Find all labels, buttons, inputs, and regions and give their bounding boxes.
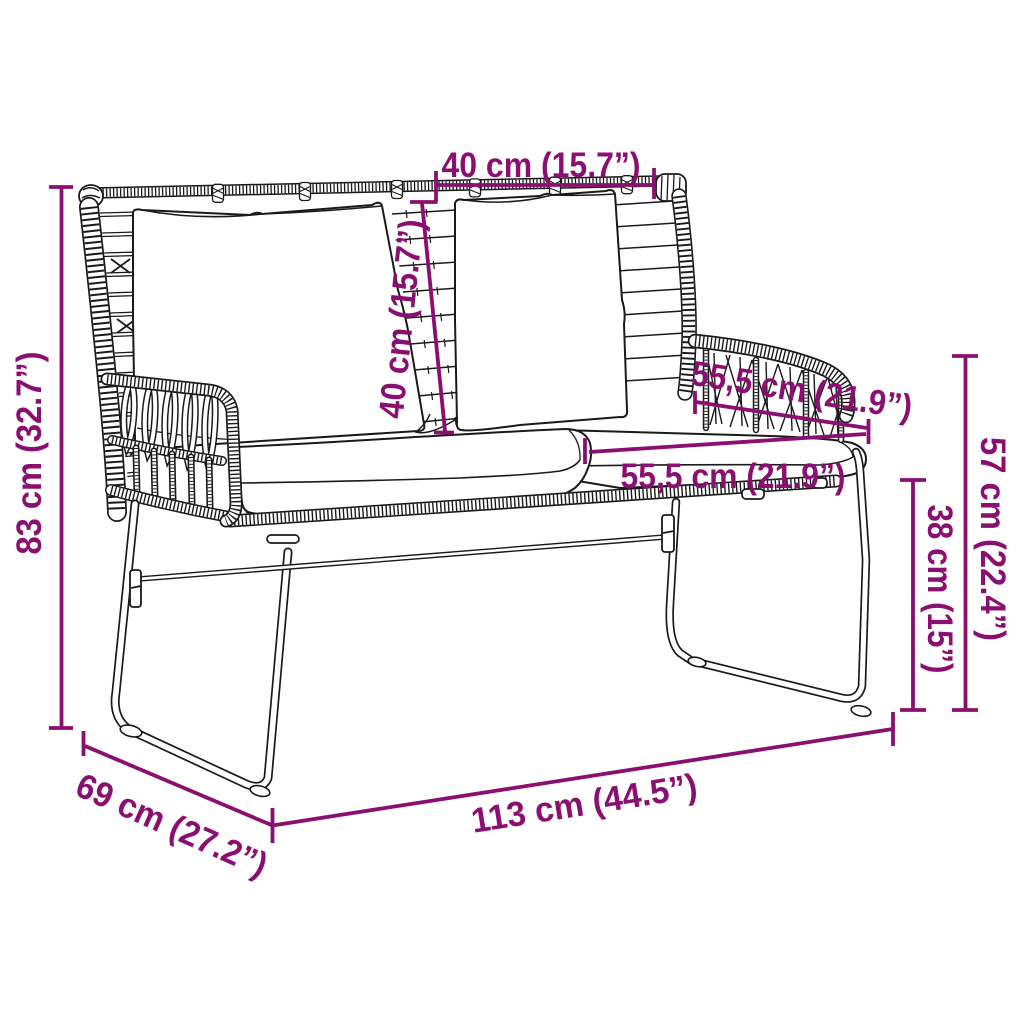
- svg-text:55,5 cm (21.9”): 55,5 cm (21.9”): [621, 457, 846, 496]
- svg-text:57 cm (22.4”): 57 cm (22.4”): [973, 437, 1012, 641]
- svg-text:40 cm (15.7”): 40 cm (15.7”): [442, 146, 641, 185]
- svg-text:38 cm (15”): 38 cm (15”): [920, 505, 959, 674]
- svg-text:83 cm (32.7”): 83 cm (32.7”): [10, 352, 49, 555]
